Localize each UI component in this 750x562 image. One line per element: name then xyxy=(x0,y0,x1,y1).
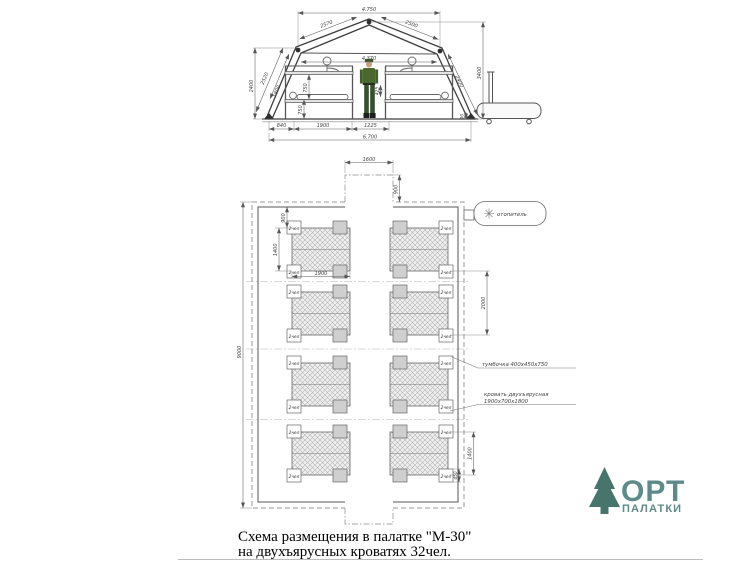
nightstand xyxy=(333,425,347,438)
bed-capacity-label: 2чел xyxy=(441,474,452,480)
dim-wall-slope-left: 2520 xyxy=(260,72,270,86)
bed-capacity-label: 2чел xyxy=(289,270,300,276)
dim-left-height: 2400 xyxy=(249,80,255,93)
dim-wall-slope-left2: 1800 xyxy=(272,85,282,99)
bed-note-line1: кровать двухъярусная xyxy=(484,392,549,398)
nightstand xyxy=(393,425,407,438)
tree-icon xyxy=(589,467,620,514)
dim-plinth: 90 xyxy=(460,114,466,120)
nightstand xyxy=(393,400,407,413)
dim-row-gap: 2000 xyxy=(481,297,487,310)
dim-roof-left: 2570 xyxy=(320,19,334,29)
bed-capacity-label: 2чел xyxy=(289,226,300,232)
dim-inner-width: 4.370 xyxy=(362,56,376,62)
bed-capacity-label: 2чел xyxy=(289,405,300,411)
nightstand xyxy=(333,329,347,342)
bed-blocks: 2чел2чел2чел2чел2чел2чел2чел2чел2чел2чел… xyxy=(287,221,453,482)
nightstand-note: тумбочка 400х450х750 xyxy=(482,362,548,368)
dim-bed-length: 1900 xyxy=(315,271,328,277)
heater-label: отопитель xyxy=(497,212,527,218)
dim-top-gap: 900 xyxy=(281,213,287,223)
bed-capacity-label: 2чел xyxy=(441,430,452,436)
dim-wall-slope-right: 2400 xyxy=(453,75,464,89)
nightstand xyxy=(393,285,407,298)
nightstand xyxy=(333,469,347,482)
dim-right-height: 3400 xyxy=(477,67,483,80)
nightstand xyxy=(393,265,407,278)
bed-note-line2: 1900х700х1800 xyxy=(484,399,529,405)
nightstand xyxy=(333,221,347,234)
tent-layout-drawing: 4.750 2570 2500 4.370 2400 2520 1800 750… xyxy=(0,0,750,562)
ort-palatki-logo: ОРТ ПАЛАТКИ xyxy=(589,467,685,515)
bed-capacity-label: 2чел xyxy=(441,361,452,367)
bed-capacity-label: 2чел xyxy=(289,361,300,367)
dim-bottom-block: 1400 xyxy=(467,447,473,460)
dim-roof-right: 2500 xyxy=(404,19,418,29)
dim-tier-lower: 750 xyxy=(298,105,304,115)
dim-aisle-head: 425 xyxy=(374,87,380,95)
dim-base-left: 840 xyxy=(277,123,287,129)
nightstand xyxy=(393,356,407,369)
tent-cross-section: 4.750 2570 2500 4.370 2400 2520 1800 750… xyxy=(249,7,541,142)
nightstand xyxy=(333,285,347,298)
nightstand xyxy=(393,469,407,482)
entrance-top xyxy=(345,175,393,202)
nightstand xyxy=(393,329,407,342)
bed-capacity-label: 2чел xyxy=(441,270,452,276)
bed-capacity-label: 2чел xyxy=(441,334,452,340)
bed-capacity-label: 2чел xyxy=(289,334,300,340)
dim-entry-width: 1600 xyxy=(363,157,376,163)
nightstand xyxy=(333,356,347,369)
bed-capacity-label: 2чел xyxy=(289,430,300,436)
caption-line1: Схема размещения в палатке "М-30" xyxy=(238,529,471,545)
nightstand xyxy=(333,400,347,413)
dim-top-width: 4.750 xyxy=(362,7,376,13)
tent-floor-plan: 2чел2чел2чел2чел2чел2чел2чел2чел2чел2чел… xyxy=(237,157,576,524)
caption-line2: на двухъярусных кроватях 32чел. xyxy=(238,544,451,560)
dim-entry-depth: 900 xyxy=(393,185,399,195)
bed-capacity-label: 2чел xyxy=(289,474,300,480)
heater-plan: отопитель xyxy=(464,202,546,226)
dim-tier-upper: 750 xyxy=(303,83,309,93)
dim-block-depth: 1400 xyxy=(273,243,279,256)
plan-annotations: тумбочка 400х450х750 кровать двухъярусна… xyxy=(450,357,576,411)
dim-nightstand: 450 xyxy=(453,471,459,479)
dim-base-bed: 1900 xyxy=(317,123,330,129)
logo-subtitle: ПАЛАТКИ xyxy=(622,503,682,515)
bed-capacity-label: 2чел xyxy=(441,290,452,296)
entrance-bottom xyxy=(345,508,393,524)
bed-capacity-label: 2чел xyxy=(441,405,452,411)
bed-capacity-label: 2чел xyxy=(289,290,300,296)
dim-total-width: 6.700 xyxy=(363,134,377,140)
nightstand xyxy=(333,265,347,278)
heater-section xyxy=(477,72,541,124)
nightstand xyxy=(393,221,407,234)
bed-capacity-label: 2чел xyxy=(441,226,452,232)
dim-total-length: 9000 xyxy=(237,346,243,359)
dim-base-aisle: 1225 xyxy=(364,123,377,129)
drawing-caption: Схема размещения в палатке "М-30" на дву… xyxy=(178,529,703,560)
